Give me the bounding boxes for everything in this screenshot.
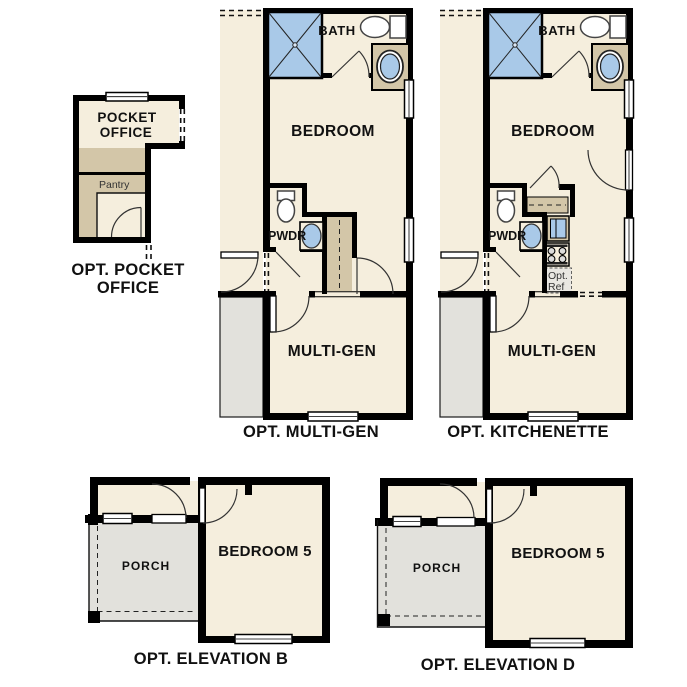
window <box>625 218 634 262</box>
bath-label: BATH <box>538 23 576 38</box>
powder-toilet-fixture <box>498 191 515 222</box>
window <box>530 639 585 648</box>
kitchen-sink-fixture <box>547 216 569 241</box>
toilet-fixture <box>361 16 407 38</box>
porch-label: PORCH <box>122 559 170 573</box>
bedroom-label: BEDROOM <box>511 123 595 140</box>
elevation-d-plan: PORCH BEDROOM 5 OPT. ELEVATION D <box>375 478 633 674</box>
bedroom5-label: BEDROOM 5 <box>511 545 605 562</box>
stove-fixture <box>545 243 569 266</box>
elevation-b-caption: OPT. ELEVATION B <box>134 650 289 668</box>
bath-sink-fixture <box>372 44 409 90</box>
window <box>393 517 421 527</box>
entry-door-leaf <box>437 518 475 527</box>
window <box>103 514 132 524</box>
floor-plans-svg: POCKET OFFICE Pantry OPT. POCKET OFFICE <box>0 0 687 687</box>
porch-post <box>88 611 100 623</box>
powder-toilet-fixture <box>278 191 295 222</box>
kitchenette-plan: BATH BEDROOM PWDR Opt. Ref MULTI-GEN OPT… <box>438 8 634 441</box>
pocket-office-label-line2: OFFICE <box>100 125 153 140</box>
porch-area <box>377 526 485 627</box>
porch-area <box>440 297 483 417</box>
window <box>405 218 414 262</box>
multigen-room-label: MULTI-GEN <box>508 343 597 360</box>
pocket-office-caption-line1: OPT. POCKET <box>71 261 184 279</box>
kitchen-counter <box>527 197 568 213</box>
bedroom5-floor <box>489 482 629 644</box>
window <box>405 80 414 118</box>
porch-label: PORCH <box>413 561 461 575</box>
pantry-label: Pantry <box>99 179 130 191</box>
porch-post <box>378 614 390 626</box>
interior-wall <box>79 172 145 175</box>
pocket-office-plan: POCKET OFFICE Pantry OPT. POCKET OFFICE <box>71 93 185 298</box>
toilet-fixture <box>581 16 627 38</box>
window <box>528 412 578 421</box>
desk-counter <box>79 148 145 172</box>
side-door-leaf <box>441 252 478 258</box>
shower-fixture <box>488 12 542 78</box>
pocket-office-label-line1: POCKET <box>97 110 157 125</box>
multi-gen-caption: OPT. MULTI-GEN <box>243 423 379 441</box>
multi-gen-plan: BATH BEDROOM PWDR MULTI-GEN OPT. MULTI-G… <box>218 8 414 441</box>
entry-door-leaf <box>152 515 186 524</box>
opt-ref-label-line2: Ref <box>548 281 564 293</box>
kitchenette-caption: OPT. KITCHENETTE <box>447 423 609 441</box>
bedroom-label: BEDROOM <box>291 123 375 140</box>
porch-area <box>220 297 263 417</box>
window <box>625 80 634 118</box>
entry-door-leaf <box>270 296 276 332</box>
window <box>235 635 292 644</box>
floor-plan-sheet: POCKET OFFICE Pantry OPT. POCKET OFFICE <box>0 0 687 687</box>
powder-label: PWDR <box>488 229 526 243</box>
window <box>308 412 358 421</box>
window <box>106 93 148 102</box>
pocket-office-caption-line2: OFFICE <box>97 279 159 297</box>
elevation-b-plan: PORCH BEDROOM 5 OPT. ELEVATION B <box>85 477 330 668</box>
bath-sink-fixture <box>592 44 629 90</box>
bedroom5-label: BEDROOM 5 <box>218 543 312 560</box>
entry-door-leaf <box>490 296 496 332</box>
shower-fixture <box>268 12 322 78</box>
multigen-room-label: MULTI-GEN <box>288 343 377 360</box>
elevation-d-caption: OPT. ELEVATION D <box>421 656 576 674</box>
bath-label: BATH <box>318 23 356 38</box>
bedroom5-floor <box>202 481 326 639</box>
closet <box>327 217 352 291</box>
powder-label: PWDR <box>268 229 306 243</box>
porch-post <box>88 514 98 525</box>
side-door-leaf <box>221 252 258 258</box>
